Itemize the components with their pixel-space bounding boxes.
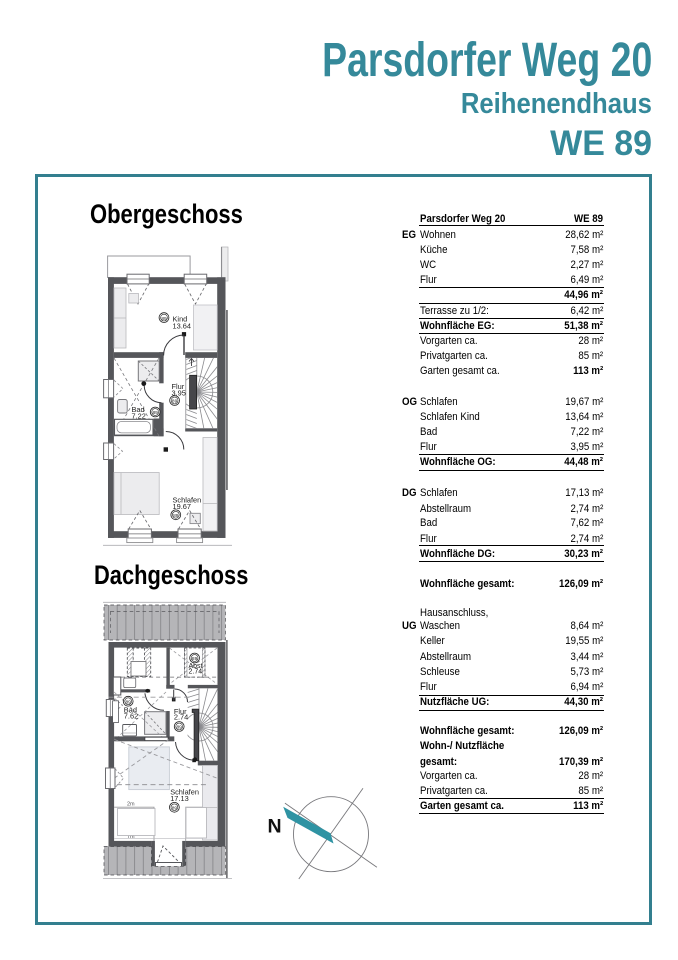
svg-text:7.22: 7.22 <box>132 411 146 420</box>
svg-text:89: 89 <box>177 725 183 731</box>
svg-text:17.13: 17.13 <box>170 794 189 803</box>
svg-text:7.62: 7.62 <box>124 712 138 721</box>
svg-text:2m: 2m <box>127 801 135 807</box>
svg-text:89: 89 <box>172 399 178 405</box>
svg-text:13.64: 13.64 <box>173 322 192 331</box>
svg-text:89: 89 <box>173 513 179 519</box>
svg-text:2.74: 2.74 <box>189 669 203 676</box>
svg-text:89: 89 <box>192 656 198 662</box>
svg-text:89: 89 <box>161 316 167 322</box>
svg-text:89: 89 <box>172 806 178 812</box>
svg-text:N: N <box>268 816 282 838</box>
svg-text:89: 89 <box>153 410 159 416</box>
svg-text:89: 89 <box>126 699 132 705</box>
svg-text:2.74: 2.74 <box>174 713 188 722</box>
